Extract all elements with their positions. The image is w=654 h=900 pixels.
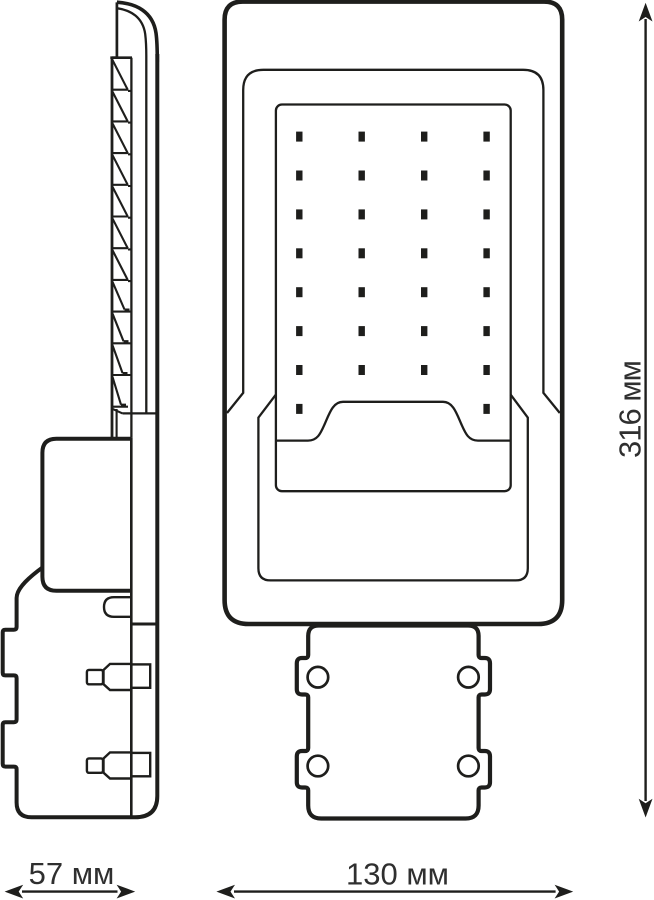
svg-text:130 мм: 130 мм (346, 857, 449, 892)
svg-text:57 мм: 57 мм (29, 856, 115, 891)
svg-text:316 мм: 316 мм (612, 361, 647, 458)
